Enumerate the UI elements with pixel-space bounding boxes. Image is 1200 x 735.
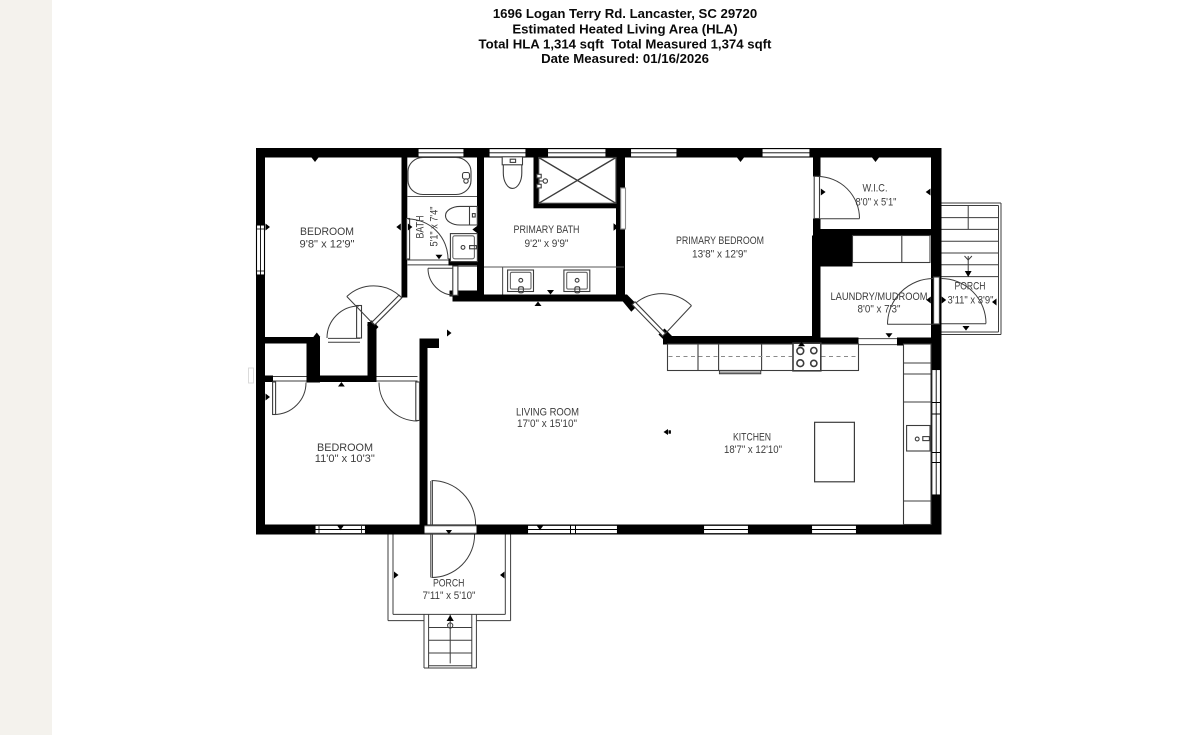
svg-text:PRIMARY BATH: PRIMARY BATH	[514, 224, 580, 236]
svg-text:PRIMARY BEDROOM: PRIMARY BEDROOM	[676, 235, 764, 247]
svg-text:11'0" x 10'3": 11'0" x 10'3"	[315, 453, 375, 465]
svg-text:KITCHEN: KITCHEN	[733, 432, 771, 444]
svg-text:9'8" x 12'9": 9'8" x 12'9"	[300, 239, 355, 251]
svg-text:Date Measured: 01/16/2026: Date Measured: 01/16/2026	[541, 51, 709, 66]
svg-text:BEDROOM: BEDROOM	[300, 226, 354, 238]
svg-text:3'11" x 3'9": 3'11" x 3'9"	[948, 295, 994, 307]
svg-text:17'0" x 15'10": 17'0" x 15'10"	[517, 418, 577, 430]
svg-text:1696 Logan Terry Rd. Lancaster: 1696 Logan Terry Rd. Lancaster, SC 29720	[493, 6, 757, 21]
svg-text:Total HLA 1,314 sqft Total Me: Total HLA 1,314 sqft Total Measured 1,37…	[479, 37, 772, 52]
svg-text:Estimated Heated Living Area (: Estimated Heated Living Area (HLA)	[512, 22, 737, 37]
svg-text:PORCH: PORCH	[955, 281, 986, 293]
svg-text:7'11" x 5'10": 7'11" x 5'10"	[423, 590, 476, 602]
svg-text:LIVING ROOM: LIVING ROOM	[516, 407, 579, 419]
svg-text:8'0" x 7'3": 8'0" x 7'3"	[858, 304, 901, 316]
svg-text:5'1" x 7'4": 5'1" x 7'4"	[429, 206, 441, 246]
svg-text:18'7" x 12'10": 18'7" x 12'10"	[724, 444, 782, 456]
svg-text:PORCH: PORCH	[433, 578, 465, 590]
svg-text:LAUNDRY/MUDROOM: LAUNDRY/MUDROOM	[831, 291, 928, 303]
svg-text:13'8" x 12'9": 13'8" x 12'9"	[692, 249, 747, 261]
svg-text:BATH: BATH	[415, 216, 427, 239]
svg-text:9'2" x 9'9": 9'2" x 9'9"	[525, 238, 569, 250]
svg-text:8'0" x 5'1": 8'0" x 5'1"	[856, 197, 897, 209]
svg-text:W.I.C.: W.I.C.	[863, 183, 888, 195]
